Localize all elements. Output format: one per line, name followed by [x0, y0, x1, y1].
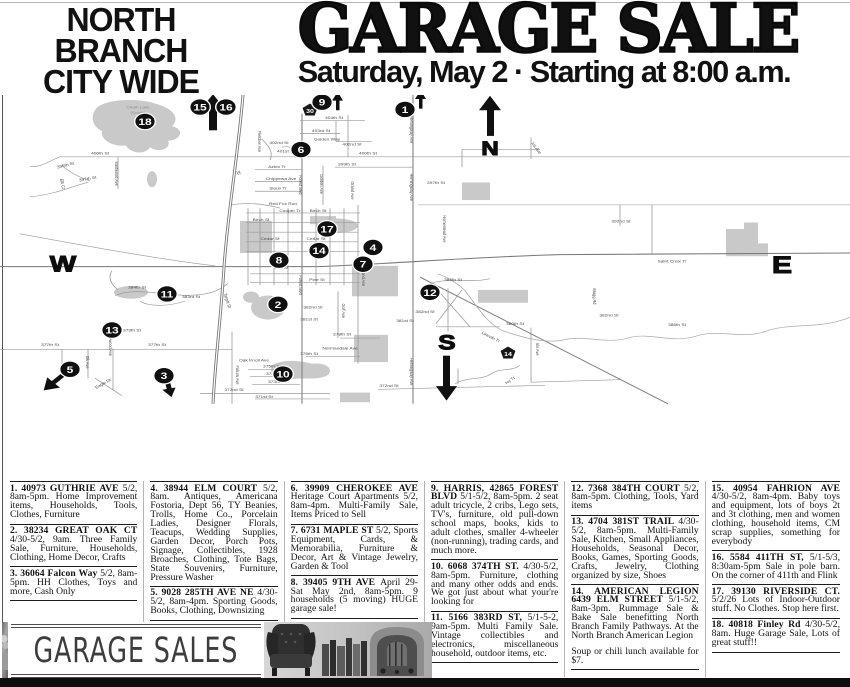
street-label: 379th St — [123, 328, 142, 332]
sale-listing-17: 17. 39130 RIVERSIDE CT. 5/2/26 Lots of I… — [712, 584, 840, 618]
street-label: Iris Ave — [535, 343, 541, 356]
map-marker-13: 13 — [102, 322, 123, 339]
sale-listing-3: 3. 36064 Falcon Way 5/2, 8am-5pm. HH Clo… — [10, 566, 137, 601]
street-label: 402nd St — [269, 140, 289, 144]
sale-listing-16: 16. 5584 411TH ST, 5/1-5/3, 8:30am-5pm S… — [712, 550, 840, 584]
street-label: 404th St — [325, 116, 344, 120]
street-label: Fletcher Ave — [257, 131, 263, 153]
bottom-black-bar — [0, 678, 850, 687]
street-label: Golden Way — [314, 137, 341, 141]
map-marker-9: 9 — [312, 95, 333, 110]
svg-text:9: 9 — [319, 98, 326, 109]
street-label: Birch St — [310, 209, 328, 213]
compass-south-arrow — [436, 356, 457, 401]
event-date-subtitle: Saturday, May 2 · Starting at 8:00 a.m. — [241, 54, 847, 90]
street-label: Forest Blvd — [298, 275, 304, 295]
street-label: 382nd St — [303, 305, 323, 309]
map-marker-11: 11 — [157, 286, 178, 303]
compass-north-label: N — [481, 137, 498, 159]
street-label: 381st St — [396, 318, 414, 322]
street-label: Birch St — [253, 217, 271, 221]
street-label: 403rd St — [312, 128, 331, 132]
marker1-arrow — [415, 95, 426, 109]
map-marker-4: 4 — [363, 239, 384, 256]
map-marker-14: 14 — [309, 242, 330, 259]
street-label: 371st St — [255, 395, 273, 399]
street-label: 397th St — [78, 175, 97, 182]
sale-listing-note: Soup or chili lunch available for $7. — [571, 648, 698, 666]
street-label: 400th St — [359, 151, 378, 155]
street-label: 385th St — [444, 278, 463, 282]
svg-text:10: 10 — [276, 370, 289, 381]
sale-listing-18: 18. 40818 Finley Rd 4/30-5/2, 8am. Huge … — [712, 618, 840, 653]
antique-radio-icon — [370, 627, 424, 676]
street-label: Ivy Tr — [504, 375, 517, 385]
street-label: Hemingway Ave — [409, 173, 415, 201]
street-label: 402nd St — [342, 142, 362, 146]
map-marker-5: 5 — [60, 361, 81, 378]
city-map: Chain Lake(South)400th St399th St397th S… — [0, 95, 850, 480]
listing-column: 15. 40954 FAHRION AVE 4/30-5/2, 8am-4pm.… — [706, 481, 846, 677]
sale-listing-12: 12. 7368 384TH COURT 5/2, 8am-5pm. Cloth… — [571, 481, 698, 515]
map-water-areas — [93, 100, 768, 402]
svg-text:4: 4 — [370, 243, 377, 254]
marker9-arrow — [332, 95, 343, 110]
compass-east-label: E — [772, 251, 792, 278]
street-label: Oak Knoll Ave — [239, 358, 270, 362]
street-label: 382nd St — [599, 313, 619, 317]
map-marker-1: 1 — [395, 101, 416, 118]
street-label: Iris Ave — [530, 142, 543, 156]
sale-listing-15: 15. 40954 FAHRION AVE 4/30-5/2, 8am-4pm.… — [712, 481, 840, 550]
listing-column: 9. HARRIS, 42865 FOREST BLVD 5/1-5/2, 8a… — [425, 481, 565, 677]
sale-listing-11: 11. 5166 383RD ST, 5/1-5-2, 9am-5pm. Mul… — [431, 611, 558, 664]
garage-sales-banner-text: GARAGE SALES — [34, 631, 239, 671]
street-label: 399th St — [338, 162, 357, 166]
sale-listing-2: 2. 38234 GREAT OAK CT 4/30-5/2, 9am. Thr… — [10, 524, 137, 567]
city-wide-kicker: NORTH BRANCH CITY WIDE — [11, 4, 230, 97]
street-label: 400th St — [91, 151, 110, 155]
wingback-chair-icon — [266, 624, 315, 676]
photo-strip: GARAGE SALES — [2, 622, 432, 678]
street-label: 384th St — [128, 285, 147, 289]
svg-text:6: 6 — [298, 145, 305, 156]
map-marker-15: 15 — [190, 99, 211, 116]
svg-text:5: 5 — [67, 365, 74, 376]
sale-listing-1: 1. 40973 GUTHRIE AVE 5/2, 8am-5pm. Home … — [10, 481, 137, 524]
map-marker-16: 16 — [216, 99, 237, 116]
sale-listing-7: 7. 6731 MAPLE ST 5/2, Sports Equipment, … — [291, 524, 418, 576]
svg-text:14: 14 — [312, 246, 325, 257]
svg-text:17: 17 — [320, 224, 333, 235]
svg-text:18: 18 — [138, 117, 151, 128]
map-marker-10: 10 — [273, 366, 294, 383]
map-marker-3: 3 — [154, 367, 175, 384]
street-label: Aztec Tr — [268, 164, 286, 168]
map-marker-18: 18 — [135, 113, 156, 130]
street-label: Target Dr — [222, 293, 233, 310]
street-label: 381st St — [300, 317, 318, 321]
sale-listing-4: 4. 38944 ELM COURT 5/2, 8am. Antiques, A… — [150, 481, 277, 586]
street-label: Hemingway Ave — [409, 116, 415, 144]
street-label: Homestead Ave — [442, 215, 448, 243]
street-label: 377th St — [148, 343, 167, 347]
street-label: 380th St — [506, 322, 525, 326]
garage-sales-banner: GARAGE SALES — [11, 624, 261, 678]
street-label: 399th St — [56, 161, 76, 170]
street-label: Forest Blvd — [298, 175, 304, 195]
street-label: Sioux Tr — [269, 186, 287, 190]
street-label: 372nd St — [379, 383, 399, 387]
map-marker-6: 6 — [291, 141, 312, 158]
couple-shopping-photo — [2, 622, 8, 678]
map-marker-17: 17 — [317, 221, 338, 238]
kicker-line-1: NORTH — [11, 4, 230, 35]
street-label: Bragg Rd — [592, 288, 598, 305]
sale-listing-13: 13. 4704 381ST TRAIL 4/30-5/2, 8am-5pm. … — [571, 515, 698, 584]
street-label: Normandale Ave — [322, 346, 358, 350]
street-label: 397th St — [427, 180, 446, 184]
sale-listing-10: 10. 6068 374TH ST. 4/30-5/2, 8am-5pm. Fu… — [431, 559, 558, 611]
street-label: Chippewa Ave — [266, 176, 297, 180]
street-label: 392nd St — [611, 219, 631, 223]
street-label: 386th St — [668, 322, 687, 326]
svg-text:11: 11 — [161, 289, 174, 300]
street-label: Cedar St — [307, 237, 327, 241]
street-label: Golf Ave — [341, 304, 347, 319]
street-label: 383rd St — [182, 294, 201, 298]
street-label: 376th St — [300, 351, 319, 355]
street-label: 377th St — [41, 343, 60, 347]
street-label: Lincoln Tr — [481, 331, 502, 344]
sale-listing-6: 6. 39909 CHEROKEE AVE Heritage Court Apa… — [291, 481, 418, 524]
map-marker-12: 12 — [420, 284, 441, 301]
street-label: Elk Ave — [85, 356, 91, 369]
svg-text:13: 13 — [105, 325, 118, 336]
street-label: 378th St — [333, 332, 352, 336]
compass-south-label: S — [438, 331, 455, 354]
street-label: 382nd St — [415, 310, 435, 314]
sale-listing-8: 8. 39405 9TH AVE April 29- Sat May 2nd, … — [291, 575, 418, 619]
street-label: Chain Lake — [126, 105, 150, 109]
svg-text:7: 7 — [360, 260, 367, 271]
map-marker-2: 2 — [268, 296, 289, 313]
compass-west-label: W — [50, 252, 76, 277]
compass-north-arrow — [479, 96, 501, 136]
sale-items-illustration — [264, 622, 432, 678]
svg-text:30: 30 — [306, 109, 314, 115]
listing-column: 12. 7368 384TH COURT 5/2, 8am-5pm. Cloth… — [565, 481, 705, 677]
map-marker-7: 7 — [353, 256, 374, 273]
svg-text:8: 8 — [276, 256, 283, 267]
books-row-icon — [322, 638, 367, 676]
sale-listing-9: 9. HARRIS, 42865 FOREST BLVD 5/1-5/2, 8a… — [431, 481, 558, 559]
map-marker-8: 8 — [269, 252, 290, 269]
svg-text:1: 1 — [402, 105, 409, 116]
svg-text:16: 16 — [219, 103, 232, 114]
street-label: Cooper Tr — [279, 209, 301, 213]
garage-sale-ad-page: NORTH BRANCH CITY WIDE GARAGE SALE Satur… — [0, 0, 850, 687]
street-label: Elk Ct — [59, 178, 67, 190]
svg-text:15: 15 — [193, 103, 206, 114]
street-label: Hemingway Ave — [409, 358, 415, 386]
street-label: Golden Ave — [319, 174, 325, 194]
sale-listing-5: 5. 9028 285TH AVE NE 4/30-5/2, 8am-4pm. … — [150, 586, 277, 621]
svg-text:2: 2 — [275, 300, 282, 311]
street-label: Falcon Ave — [235, 365, 241, 384]
sale-items-photo — [264, 622, 432, 678]
highway-shield-14: 14 — [500, 346, 516, 359]
svg-text:12: 12 — [423, 288, 436, 299]
street-label: 35 — [235, 170, 241, 175]
sale-listing-14: 14. AMERICAN LEGION 6439 ELM STREET 5/1-… — [571, 584, 698, 670]
kicker-line-2: BRANCH — [11, 35, 230, 66]
street-label: Red Fox Run — [269, 201, 298, 205]
svg-text:3: 3 — [161, 371, 168, 382]
street-label: Grand Ave — [350, 181, 356, 200]
street-label: Cedar St — [261, 237, 281, 241]
street-label: Eastwood Ave — [114, 161, 120, 186]
street-label: 372nd St — [224, 387, 244, 391]
svg-text:14: 14 — [504, 352, 512, 358]
kicker-line-3: CITY WIDE — [11, 66, 230, 97]
street-label: Pine St — [309, 278, 325, 282]
street-label: Saint Croix Tr — [657, 259, 687, 263]
